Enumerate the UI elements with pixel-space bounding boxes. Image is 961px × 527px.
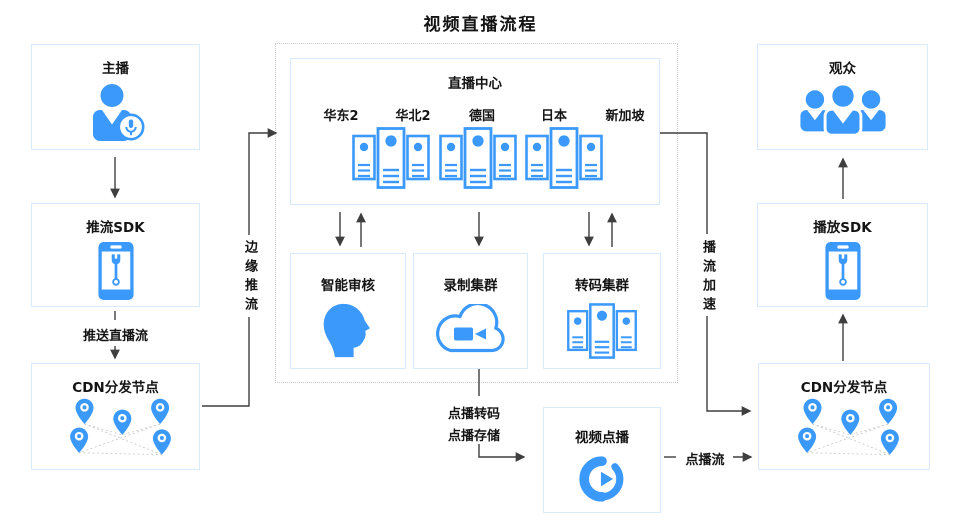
region-label-singapore: 新加坡 — [605, 105, 644, 124]
vod-transcode-label: 点播转码 — [448, 403, 500, 422]
node-cdn-left: CDN分发节点 — [31, 363, 200, 470]
node-play-sdk: 播放SDK — [757, 203, 928, 307]
node-audience-label: 观众 — [829, 57, 856, 77]
server-cluster-icon — [438, 127, 518, 189]
push-live-stream-label: 推送直播流 — [31, 325, 200, 344]
audience-group-icon — [796, 83, 890, 143]
node-transcoding-cluster: 转码集群 — [543, 253, 661, 369]
node-live-center-label: 直播中心 — [448, 72, 502, 92]
node-smart-review-label: 智能审核 — [321, 274, 375, 294]
node-push-sdk-label: 推流SDK — [86, 216, 144, 236]
phone-wrench-icon — [97, 240, 135, 302]
pin-icon — [798, 398, 899, 454]
node-anchor: 主播 — [31, 44, 200, 150]
node-vod-label: 视频点播 — [575, 426, 629, 446]
region-label-huadong2: 华东2 — [323, 105, 358, 124]
page-title: 视频直播流程 — [0, 10, 961, 35]
node-cdn-right: CDN分发节点 — [758, 363, 930, 470]
pin-icon — [70, 398, 171, 454]
phone-wrench-icon — [824, 240, 862, 302]
region-label-germany: 德国 — [469, 105, 495, 124]
vod-storage-label: 点播存储 — [448, 425, 500, 444]
edge-push-label: 边缘推流 — [242, 240, 257, 316]
arrow-vodtext-to-vodbox — [479, 444, 524, 457]
node-smart-review: 智能审核 — [290, 253, 406, 369]
server-cluster-icon — [351, 127, 431, 189]
cloud-camera-icon — [431, 304, 511, 358]
person-microphone-icon — [85, 83, 147, 143]
node-cdn-left-label: CDN分发节点 — [72, 376, 158, 396]
map-pins-mesh-icon — [45, 397, 187, 469]
play-accel-label: 播流加速 — [700, 240, 715, 316]
diagram-canvas: 视频直播流程 主播 推流SDK — [0, 0, 961, 527]
node-anchor-label: 主播 — [102, 57, 129, 77]
node-play-sdk-label: 播放SDK — [813, 216, 871, 236]
node-vod: 视频点播 — [543, 407, 661, 513]
map-pins-mesh-icon — [773, 397, 915, 469]
vod-stream-label: 点播流 — [679, 449, 731, 468]
region-label-huabei2: 华北2 — [395, 105, 430, 124]
node-audience: 观众 — [757, 44, 928, 150]
vod-cloud-play-icon — [576, 453, 628, 505]
line-cdnleft-up — [202, 317, 249, 406]
node-live-center: 直播中心 华东2 华北2 德国 日本 新加坡 — [290, 58, 660, 205]
arrow-playaccel-to-cdnright — [707, 316, 750, 411]
server-cluster-icon — [524, 127, 604, 189]
server-cluster-icon — [566, 303, 638, 359]
arrow-edgepush-to-livecenter — [249, 133, 276, 235]
node-transcoding-cluster-label: 转码集群 — [575, 274, 629, 294]
head-profile-icon — [322, 303, 374, 359]
node-cdn-right-label: CDN分发节点 — [801, 376, 887, 396]
node-recording-cluster: 录制集群 — [413, 253, 528, 369]
node-recording-cluster-label: 录制集群 — [444, 274, 498, 294]
region-label-japan: 日本 — [541, 105, 567, 124]
node-push-sdk: 推流SDK — [31, 203, 200, 307]
